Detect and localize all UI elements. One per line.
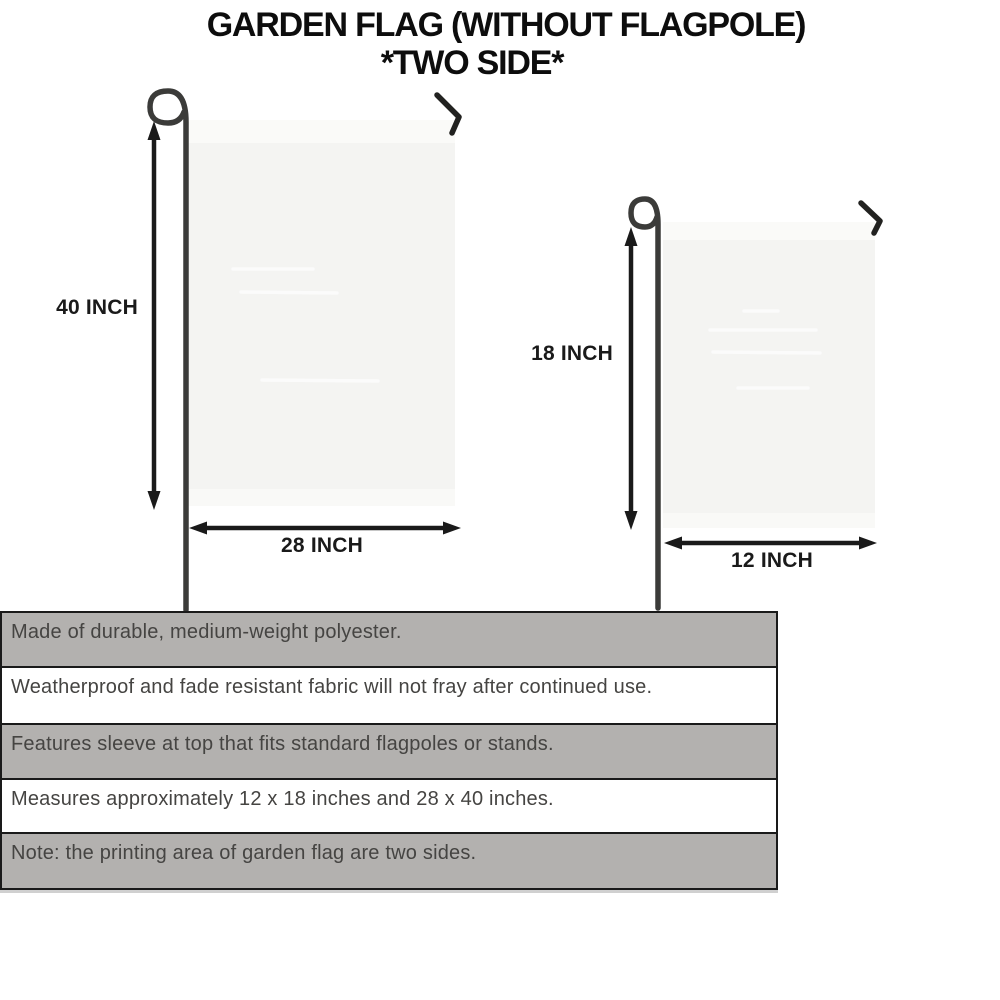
feature-row: Weatherproof and fade resistant fabric w… [2, 666, 776, 723]
large-flag-sleeve [188, 120, 455, 143]
small-flag-bottom-hem [663, 513, 875, 528]
large-flag-width-arrow [189, 522, 461, 535]
large-flag-height-arrow [148, 121, 161, 510]
garden-flag-size-infographic: { "title": { "line1": "GARDEN FLAG (WITH… [0, 0, 1000, 1000]
small-flag-group [631, 199, 880, 608]
flag-size-diagram [0, 0, 1000, 620]
feature-row: Measures approximately 12 x 18 inches an… [2, 778, 776, 832]
large-flag-group [150, 91, 459, 610]
feature-row: Note: the printing area of garden flag a… [2, 832, 776, 888]
small-flag-sleeve [663, 222, 875, 240]
small-flag-canvas [663, 222, 875, 528]
fabric-highlight [713, 352, 820, 353]
large-flag-width-label: 28 INCH [242, 534, 402, 558]
small-flagpole-shape [631, 199, 658, 608]
large-flag-height-label: 40 INCH [30, 296, 138, 320]
fabric-highlight [262, 380, 378, 381]
large-flag-bottom-hem [188, 489, 455, 506]
small-flag-width-arrow [664, 537, 877, 550]
small-flag-height-arrow [625, 227, 638, 530]
features-table: Made of durable, medium-weight polyester… [0, 611, 778, 890]
feature-row: Features sleeve at top that fits standar… [2, 723, 776, 778]
large-flag-canvas [188, 120, 455, 506]
feature-row: Made of durable, medium-weight polyester… [2, 613, 776, 666]
small-flag-width-label: 12 INCH [692, 549, 852, 573]
fabric-highlight [241, 292, 337, 293]
small-flag-height-label: 18 INCH [505, 342, 613, 366]
